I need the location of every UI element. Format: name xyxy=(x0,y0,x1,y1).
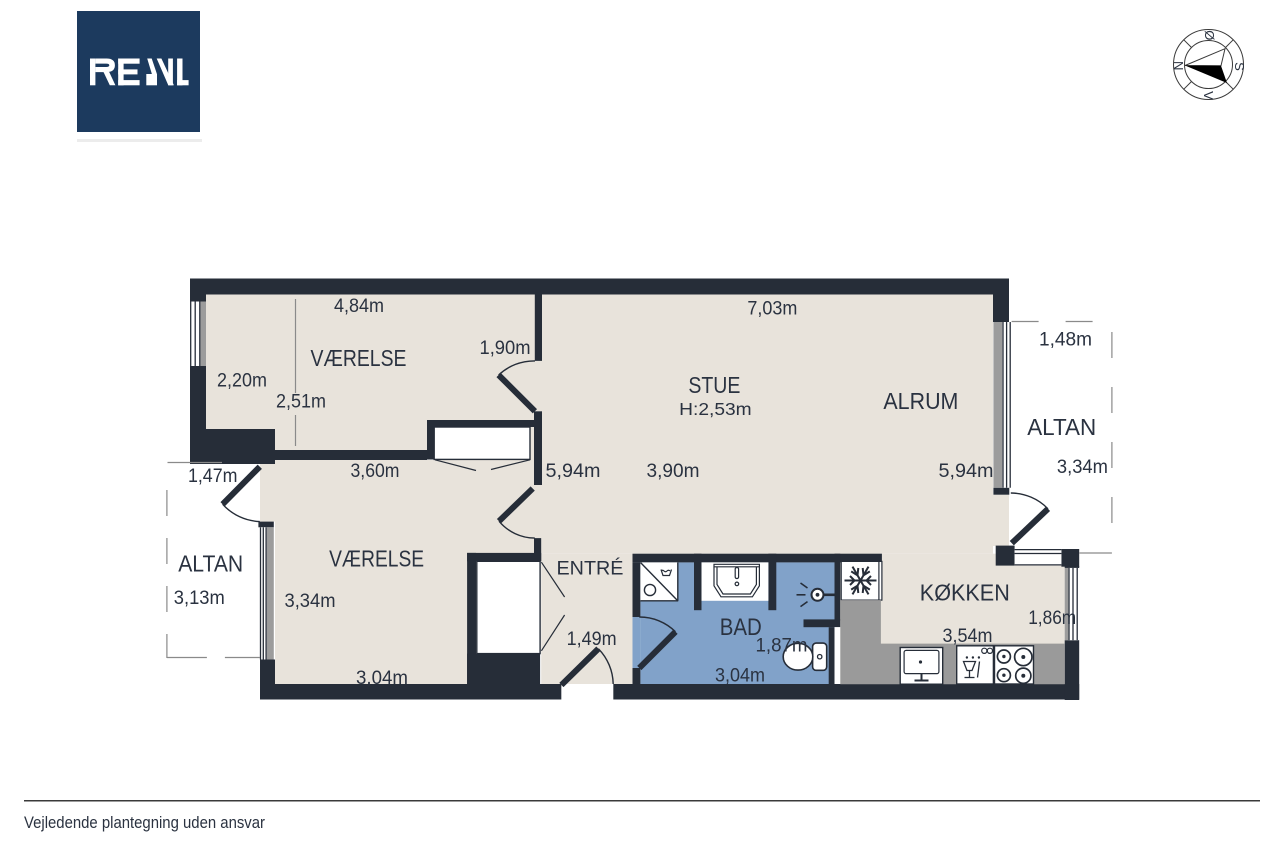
svg-text:3,13m: 3,13m xyxy=(174,588,225,609)
svg-text:1,90m: 1,90m xyxy=(480,338,531,359)
svg-text:1,86m: 1,86m xyxy=(1028,608,1076,629)
svg-text:3,34m: 3,34m xyxy=(1057,457,1108,478)
svg-text:4,84m: 4,84m xyxy=(334,296,384,317)
svg-text:3,04m: 3,04m xyxy=(356,668,408,689)
svg-text:STUE: STUE xyxy=(688,372,740,398)
svg-text:VÆRELSE: VÆRELSE xyxy=(329,546,424,572)
svg-text:5,94m: 5,94m xyxy=(939,461,994,482)
svg-text:3,60m: 3,60m xyxy=(351,461,400,482)
svg-text:ALRUM: ALRUM xyxy=(883,388,958,414)
svg-text:3,04m: 3,04m xyxy=(715,666,765,687)
svg-text:VÆRELSE: VÆRELSE xyxy=(311,345,407,371)
svg-text:5,94m: 5,94m xyxy=(546,461,601,482)
svg-text:1,49m: 1,49m xyxy=(567,629,617,650)
svg-text:ALTAN: ALTAN xyxy=(1027,414,1096,440)
svg-text:1,47m: 1,47m xyxy=(188,466,238,487)
svg-text:3,54m: 3,54m xyxy=(943,626,993,647)
svg-text:Vejledende plantegning uden an: Vejledende plantegning uden ansvar xyxy=(24,813,265,832)
svg-text:3,90m: 3,90m xyxy=(647,461,700,482)
svg-text:KØKKEN: KØKKEN xyxy=(920,579,1010,605)
svg-text:2,51m: 2,51m xyxy=(276,392,326,413)
svg-text:N: N xyxy=(1171,61,1186,70)
svg-text:H:2,53m: H:2,53m xyxy=(679,399,752,419)
svg-text:S: S xyxy=(1232,62,1247,71)
svg-text:ALTAN: ALTAN xyxy=(178,550,243,576)
svg-text:7,03m: 7,03m xyxy=(747,298,797,319)
svg-text:ENTRÉ: ENTRÉ xyxy=(557,559,624,580)
svg-text:1,87m: 1,87m xyxy=(756,636,808,657)
svg-text:2,20m: 2,20m xyxy=(217,371,267,392)
svg-text:3,34m: 3,34m xyxy=(285,591,336,612)
svg-text:1,48m: 1,48m xyxy=(1039,330,1092,351)
svg-text:V: V xyxy=(1201,91,1216,100)
svg-text:Ø: Ø xyxy=(1202,30,1217,40)
